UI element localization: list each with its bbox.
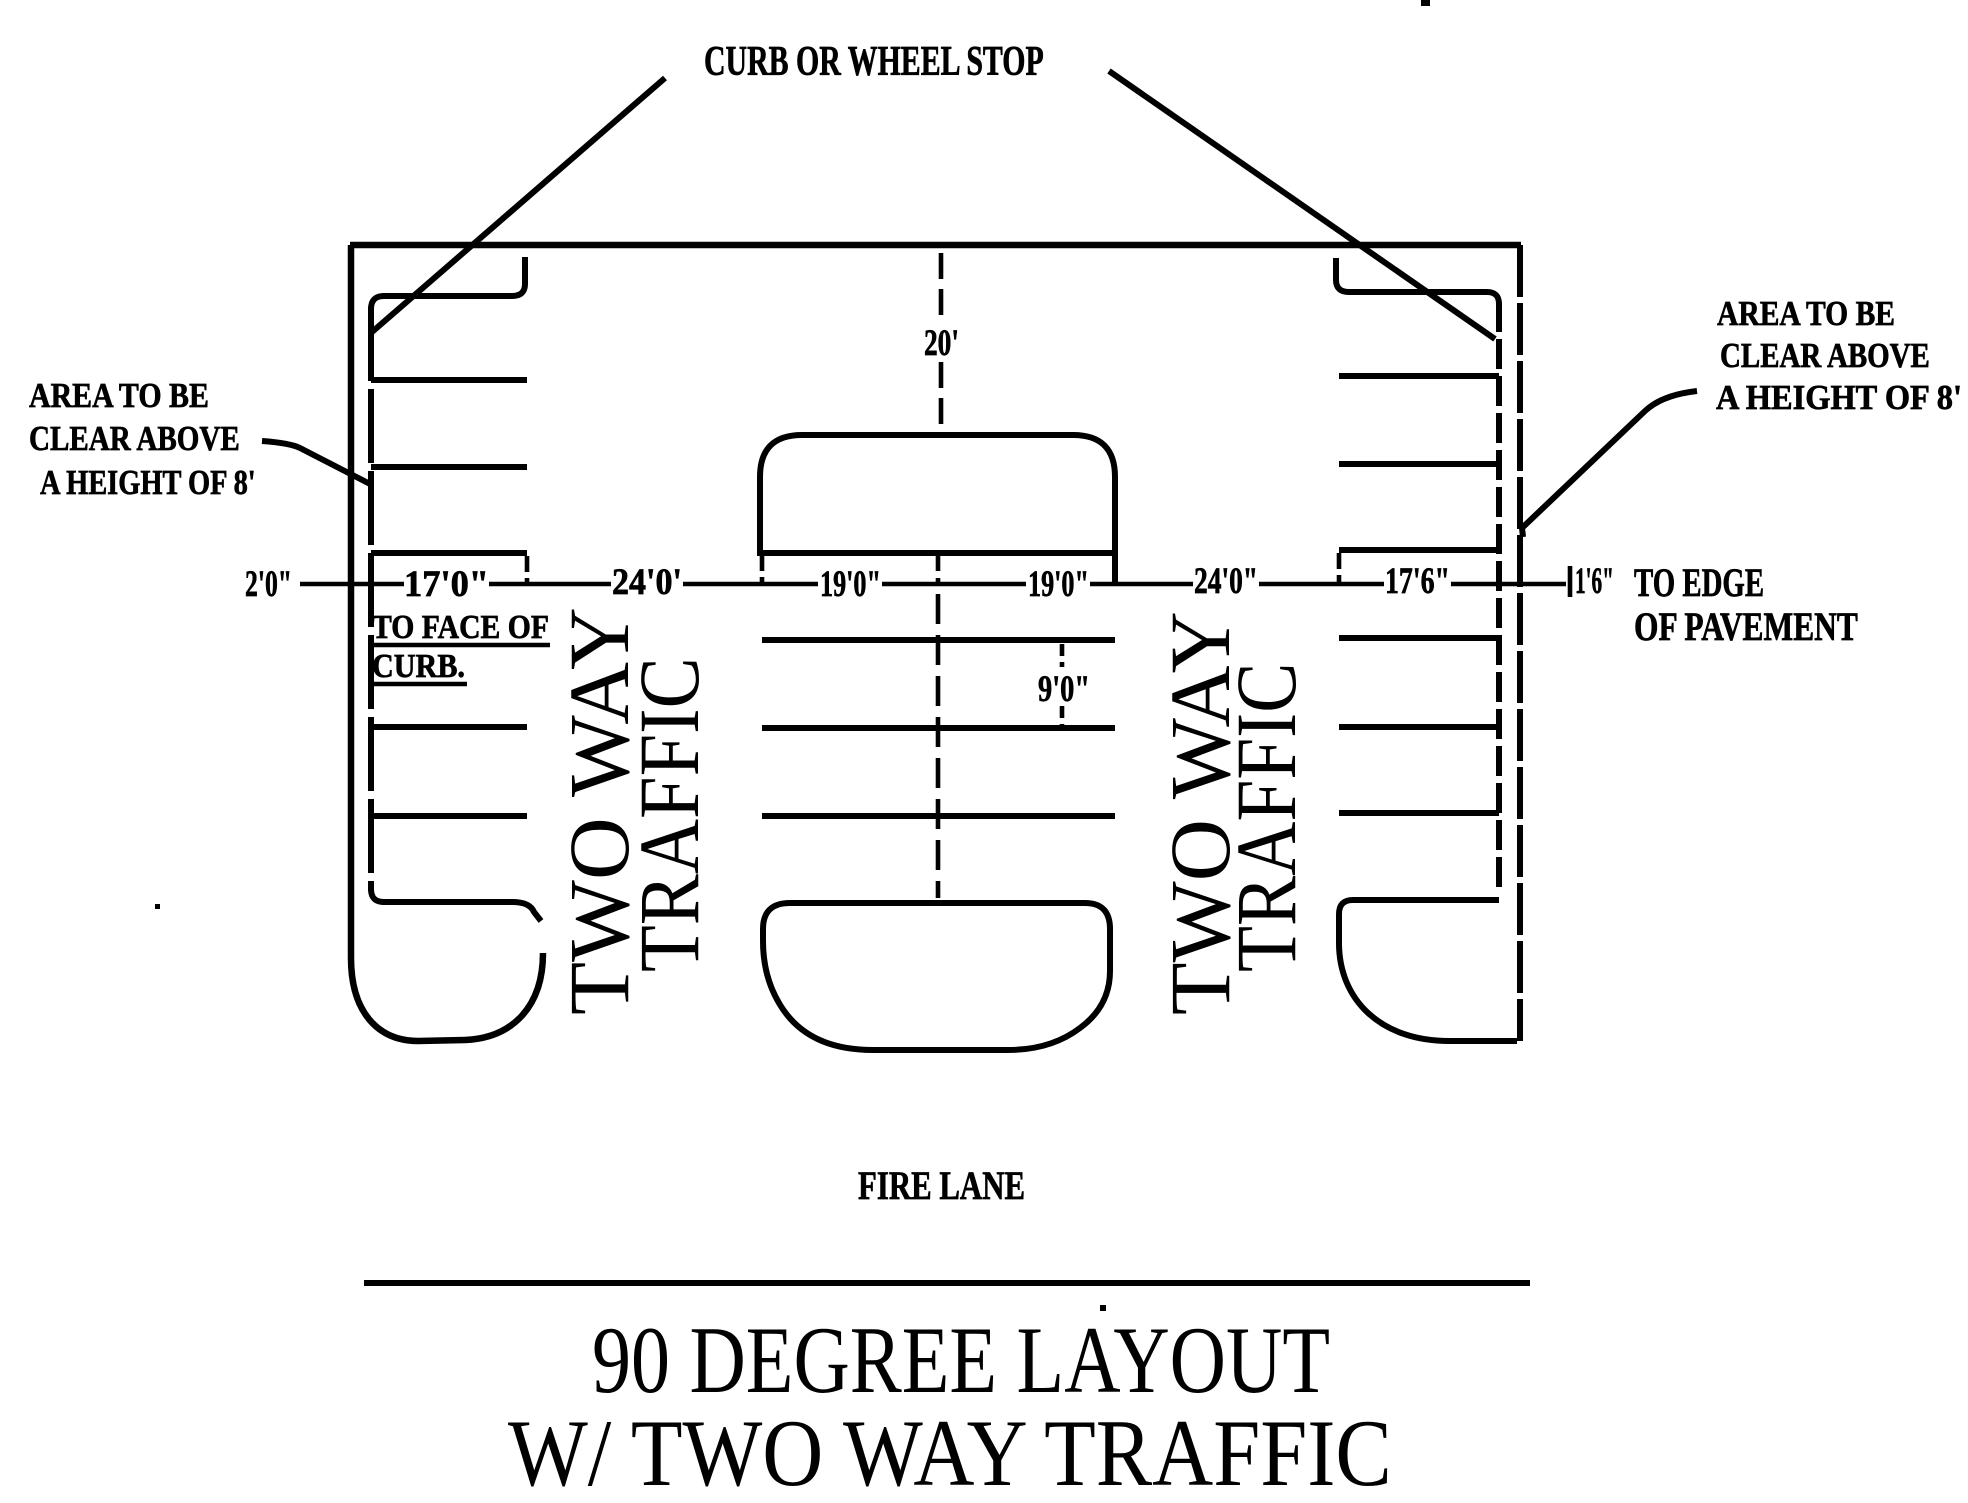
- svg-text:90 DEGREE LAYOUT: 90 DEGREE LAYOUT: [592, 1308, 1330, 1413]
- svg-text:CURB OR WHEEL STOP: CURB OR WHEEL STOP: [704, 38, 1044, 84]
- svg-text:1'6": 1'6": [1575, 560, 1614, 602]
- svg-text:A HEIGHT OF 8': A HEIGHT OF 8': [40, 463, 256, 501]
- svg-text:CLEAR ABOVE: CLEAR ABOVE: [1720, 335, 1930, 374]
- svg-text:CURB.: CURB.: [372, 646, 465, 684]
- svg-text:TRAFFIC: TRAFFIC: [621, 657, 717, 972]
- svg-text:17'0": 17'0": [404, 563, 489, 604]
- svg-text:A HEIGHT OF 8': A HEIGHT OF 8': [1716, 379, 1962, 417]
- svg-text:24'0": 24'0": [1194, 561, 1258, 602]
- svg-text:24'0': 24'0': [612, 561, 682, 603]
- svg-text:2'0": 2'0": [245, 563, 292, 604]
- svg-text:17'6": 17'6": [1385, 561, 1450, 602]
- svg-text:19'0": 19'0": [820, 563, 881, 605]
- svg-text:AREA TO BE: AREA TO BE: [29, 377, 209, 416]
- svg-text:20': 20': [924, 323, 959, 364]
- svg-text:9'0": 9'0": [1038, 670, 1090, 710]
- svg-text:19'0": 19'0": [1028, 563, 1089, 605]
- svg-text:W/ TWO WAY TRAFFIC: W/ TWO WAY TRAFFIC: [508, 1402, 1392, 1503]
- svg-text:TRAFFIC: TRAFFIC: [1219, 663, 1314, 972]
- svg-text:TO EDGE: TO EDGE: [1634, 560, 1764, 605]
- svg-text:TO FACE OF: TO FACE OF: [372, 608, 549, 645]
- svg-text:CLEAR ABOVE: CLEAR ABOVE: [29, 418, 240, 457]
- svg-text:OF PAVEMENT: OF PAVEMENT: [1634, 604, 1858, 648]
- svg-text:FIRE LANE: FIRE LANE: [858, 1163, 1025, 1208]
- svg-text:AREA TO BE: AREA TO BE: [1717, 295, 1895, 334]
